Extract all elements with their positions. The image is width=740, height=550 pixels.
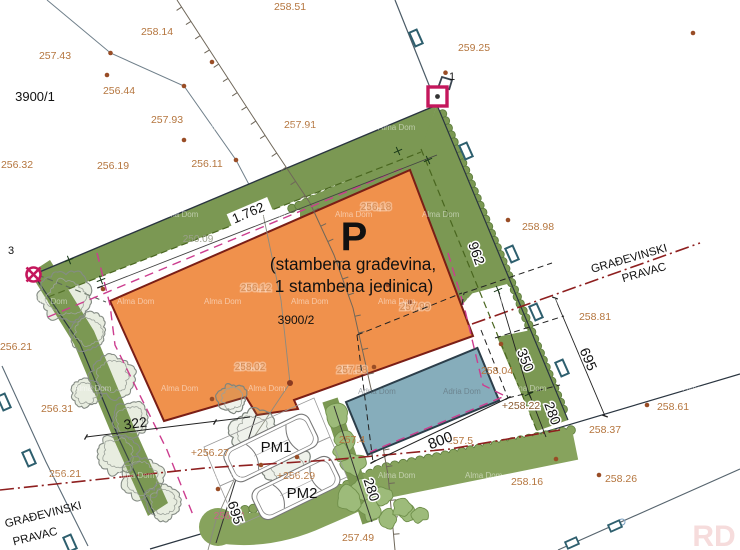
svg-text:Alma Dom: Alma Dom <box>378 471 416 480</box>
svg-text:3900/2: 3900/2 <box>278 313 315 327</box>
svg-text:Alma Dom: Alma Dom <box>552 123 590 132</box>
svg-text:256.32: 256.32 <box>1 159 33 171</box>
svg-text:256.21: 256.21 <box>0 341 32 353</box>
svg-text:Alma Dom: Alma Dom <box>74 384 112 393</box>
svg-text:Alma Dom: Alma Dom <box>465 123 503 132</box>
svg-text:258.51: 258.51 <box>274 1 306 13</box>
svg-text:Alma Dom: Alma Dom <box>248 384 286 393</box>
svg-text:Alma Dom: Alma Dom <box>422 210 460 219</box>
svg-text:Alma Dom: Alma Dom <box>291 297 329 306</box>
svg-text:RD: RD <box>692 520 735 550</box>
svg-text:Alma Dom: Alma Dom <box>291 471 329 480</box>
svg-text:257.4: 257.4 <box>339 434 365 446</box>
svg-text:322: 322 <box>123 413 149 432</box>
svg-text:Alma Dom: Alma Dom <box>683 384 721 393</box>
svg-text:Alma Dom: Alma Dom <box>117 123 155 132</box>
svg-text:257.58: 257.58 <box>337 365 368 376</box>
svg-text:Alma Dom: Alma Dom <box>74 210 112 219</box>
svg-text:PM2: PM2 <box>287 485 318 502</box>
svg-text:3: 3 <box>8 245 14 257</box>
svg-text:Alma Dom: Alma Dom <box>465 471 503 480</box>
svg-text:Alma Dom: Alma Dom <box>117 297 155 306</box>
svg-text:+256.27: +256.27 <box>191 447 229 459</box>
svg-text:Alma Dom: Alma Dom <box>291 123 329 132</box>
svg-text:+258.22: +258.22 <box>502 400 540 412</box>
svg-text:P: P <box>341 215 368 259</box>
svg-text:258.98: 258.98 <box>522 221 554 233</box>
svg-text:Alma Dom: Alma Dom <box>161 384 199 393</box>
svg-text:Alma Dom: Alma Dom <box>248 210 286 219</box>
svg-text:Adria Dom: Adria Dom <box>358 387 396 396</box>
svg-text:258.16: 258.16 <box>511 476 543 488</box>
svg-text:258.81: 258.81 <box>579 311 611 323</box>
svg-text:Alma Dom: Alma Dom <box>639 123 677 132</box>
svg-text:Alma Dom: Alma Dom <box>639 297 677 306</box>
svg-text:250.09: 250.09 <box>183 234 214 245</box>
svg-text:Alma Dom: Alma Dom <box>30 471 68 480</box>
svg-text:(stambena građevina,: (stambena građevina, <box>270 254 436 274</box>
svg-text:257.93: 257.93 <box>151 114 183 126</box>
svg-text:1 stambena jedinica): 1 stambena jedinica) <box>275 276 434 296</box>
svg-text:257.43: 257.43 <box>39 50 71 62</box>
svg-text:Alma Dom: Alma Dom <box>117 471 155 480</box>
svg-text:256.44: 256.44 <box>103 85 135 97</box>
svg-text:Alma Dom: Alma Dom <box>683 210 721 219</box>
svg-text:Alma Dom: Alma Dom <box>639 471 677 480</box>
svg-text:Alma Dom: Alma Dom <box>161 210 199 219</box>
svg-text:Alma Dom: Alma Dom <box>335 210 373 219</box>
svg-text:258.02: 258.02 <box>235 362 266 373</box>
svg-text:Alma Dom: Alma Dom <box>204 123 242 132</box>
svg-text:258.26: 258.26 <box>605 473 637 485</box>
svg-text:258.14: 258.14 <box>141 26 173 38</box>
svg-text:Alma Dom: Alma Dom <box>552 297 590 306</box>
svg-text:256.12: 256.12 <box>241 283 272 294</box>
svg-text:1: 1 <box>449 71 455 83</box>
svg-text:256.11: 256.11 <box>191 158 222 170</box>
svg-text:259.25: 259.25 <box>458 42 490 54</box>
svg-text:Adria Dom: Adria Dom <box>443 387 481 396</box>
svg-text:Alma Dom: Alma Dom <box>596 210 634 219</box>
svg-text:Alma Dom: Alma Dom <box>509 210 547 219</box>
svg-text:258.04: 258.04 <box>481 365 513 377</box>
svg-text:258.37: 258.37 <box>589 424 621 436</box>
svg-text:256.31: 256.31 <box>41 403 73 415</box>
svg-text:PM1: PM1 <box>261 439 292 456</box>
svg-text:Alma Dom: Alma Dom <box>30 297 68 306</box>
svg-text:Alma Dom: Alma Dom <box>204 471 242 480</box>
svg-text:Alma Dom: Alma Dom <box>378 123 416 132</box>
svg-text:257.49: 257.49 <box>342 532 374 544</box>
svg-text:258.61: 258.61 <box>657 401 689 413</box>
svg-text:Alma Dom: Alma Dom <box>465 297 503 306</box>
svg-text:Alma Dom: Alma Dom <box>509 384 547 393</box>
svg-text:Alma Dom: Alma Dom <box>378 297 416 306</box>
svg-text:Alma Dom: Alma Dom <box>30 123 68 132</box>
svg-text:Alma Dom: Alma Dom <box>552 471 590 480</box>
svg-text:Alma Dom: Alma Dom <box>204 297 242 306</box>
svg-text:3900/1: 3900/1 <box>15 89 55 104</box>
svg-text:256.19: 256.19 <box>97 160 129 172</box>
svg-text:Alma Dom: Alma Dom <box>596 384 634 393</box>
